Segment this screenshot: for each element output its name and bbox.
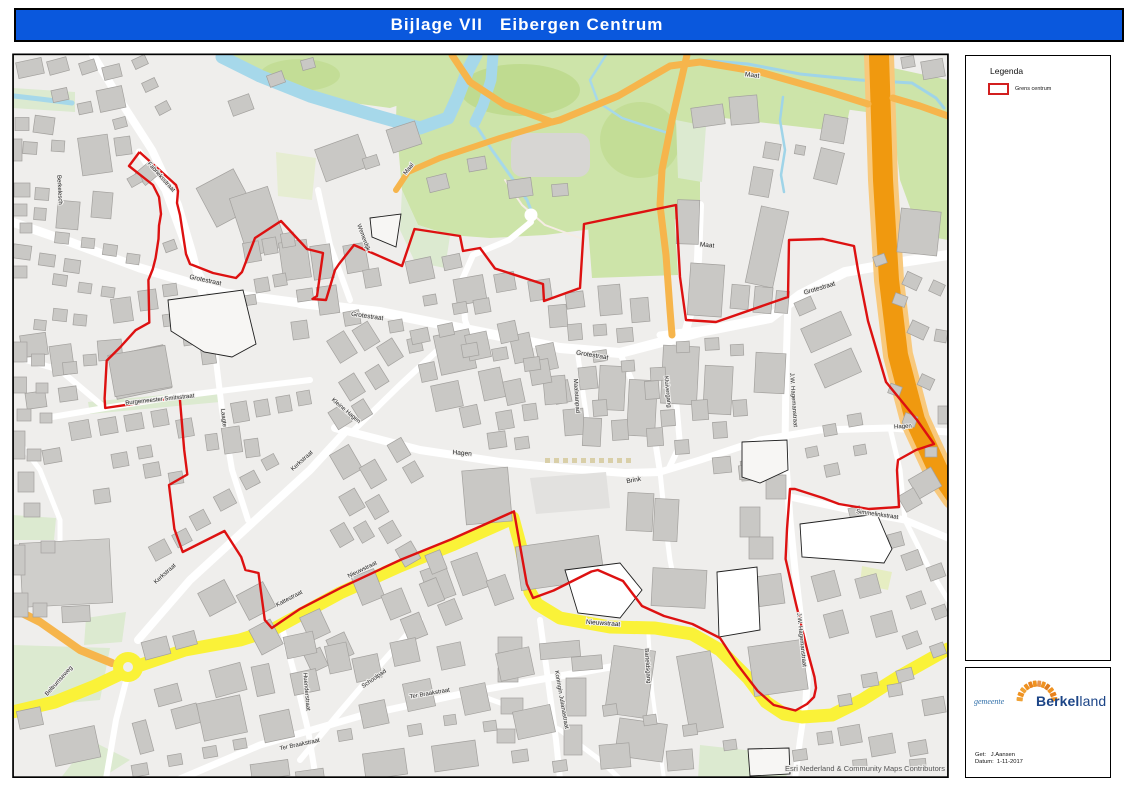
svg-text:Maat: Maat xyxy=(700,241,715,249)
svg-text:Hagen: Hagen xyxy=(894,424,912,431)
svg-text:Esri Nederland & Community Map: Esri Nederland & Community Maps Contribu… xyxy=(785,764,945,773)
